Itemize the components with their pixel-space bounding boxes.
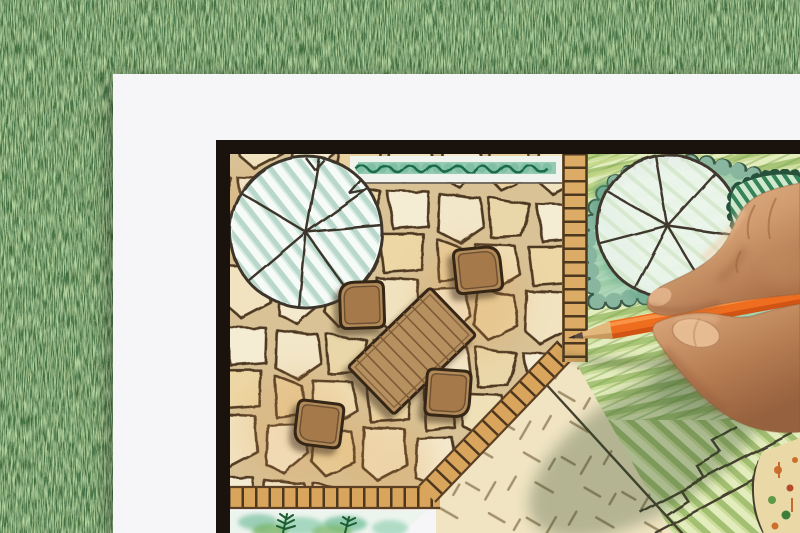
patio-chair [293, 399, 344, 448]
hedge-strip [350, 156, 562, 183]
patio-chair [424, 369, 471, 418]
tile-path [562, 153, 588, 362]
patio-chair [453, 246, 503, 295]
groundcover-bed [230, 509, 428, 533]
patio-chair [339, 281, 385, 329]
photo-garden-plan-scene [0, 0, 800, 533]
